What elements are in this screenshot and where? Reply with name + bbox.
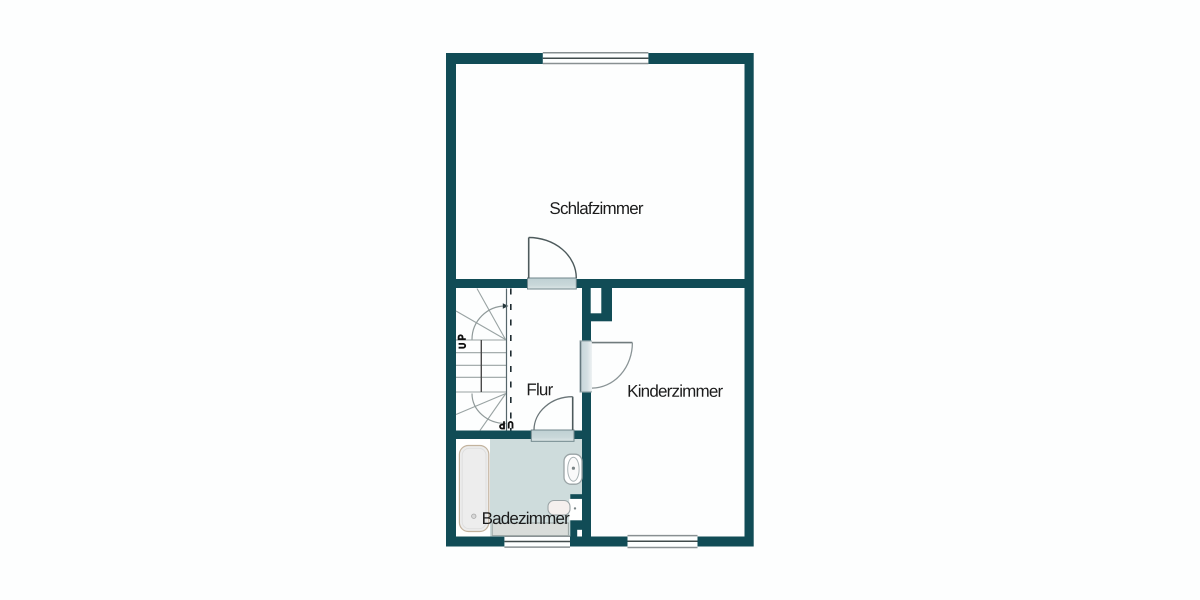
svg-text:Kinderzimmer: Kinderzimmer [627, 382, 723, 401]
svg-text:Flur: Flur [526, 380, 553, 399]
svg-text:Badezimmer: Badezimmer [482, 509, 571, 528]
svg-text:Schlafzimmer: Schlafzimmer [549, 199, 644, 218]
